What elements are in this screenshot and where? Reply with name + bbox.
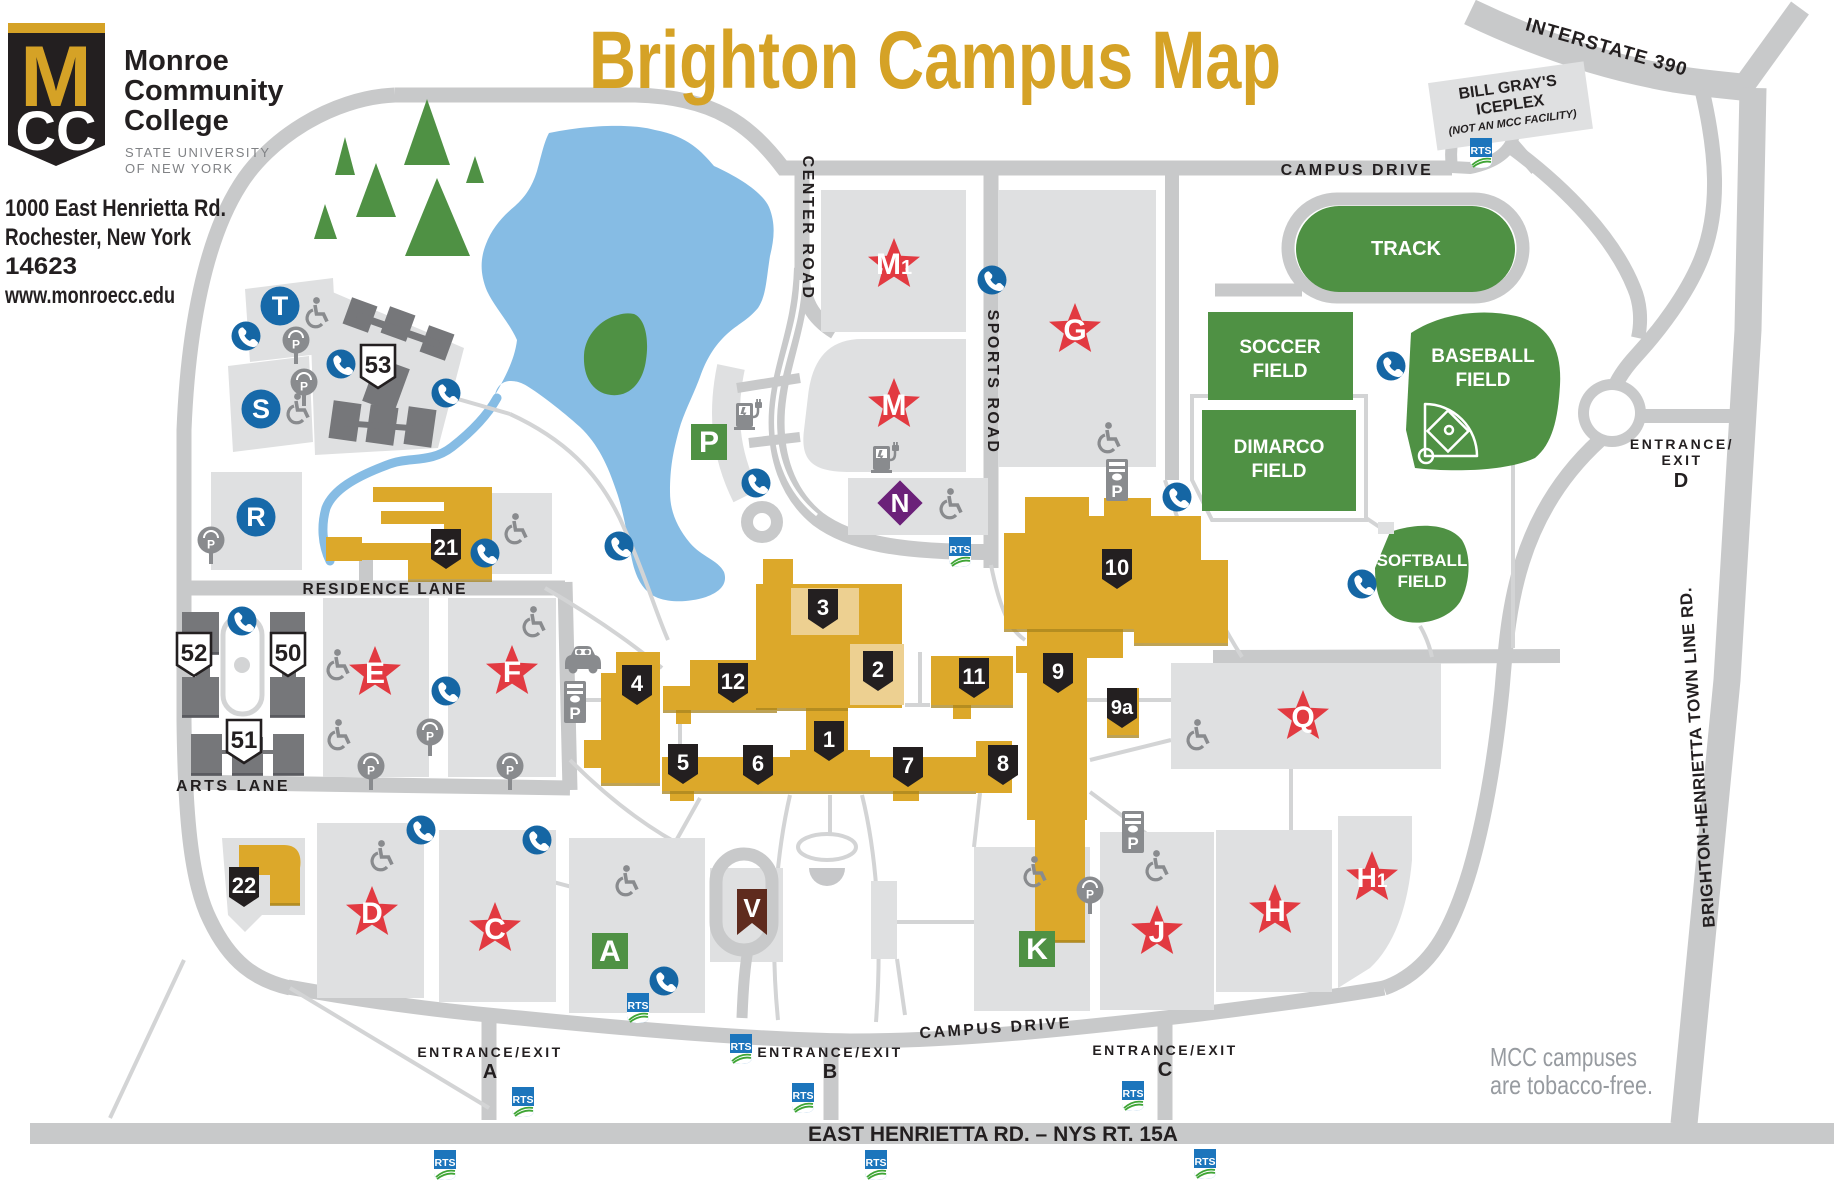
svg-text:Rochester, New York: Rochester, New York [5, 224, 192, 251]
svg-text:12: 12 [721, 669, 745, 694]
svg-text:DIMARCO: DIMARCO [1234, 437, 1325, 458]
svg-text:MCC campuses: MCC campuses [1490, 1042, 1637, 1072]
svg-text:E: E [365, 657, 385, 690]
svg-text:1000 East Henrietta Rd.: 1000 East Henrietta Rd. [5, 195, 226, 222]
svg-text:3: 3 [817, 595, 829, 620]
svg-text:V: V [743, 893, 761, 923]
svg-text:10: 10 [1105, 555, 1129, 580]
svg-text:9a: 9a [1111, 697, 1134, 719]
svg-text:RESIDENCE LANE: RESIDENCE LANE [303, 581, 468, 598]
svg-text:are tobacco-free.: are tobacco-free. [1490, 1070, 1653, 1100]
svg-text:S: S [252, 394, 270, 424]
svg-text:8: 8 [997, 751, 1009, 776]
svg-text:CC: CC [16, 99, 97, 162]
svg-text:M: M [882, 389, 907, 422]
svg-text:SOCCER: SOCCER [1239, 337, 1321, 358]
svg-text:J: J [1149, 916, 1166, 949]
svg-text:ENTRANCE/: ENTRANCE/ [1630, 436, 1734, 452]
svg-text:G: G [1063, 314, 1086, 347]
svg-text:5: 5 [677, 750, 689, 775]
svg-text:CENTER ROAD: CENTER ROAD [799, 156, 816, 301]
svg-text:50: 50 [275, 640, 302, 667]
svg-text:D: D [361, 897, 383, 930]
svg-text:College: College [124, 105, 229, 137]
svg-text:Q: Q [1291, 701, 1314, 734]
svg-text:SOFTBALL: SOFTBALL [1377, 551, 1468, 570]
svg-text:52: 52 [181, 640, 208, 667]
svg-text:C: C [1158, 1059, 1172, 1081]
svg-text:T: T [272, 291, 289, 321]
svg-text:22: 22 [232, 873, 256, 898]
svg-text:Brighton Campus Map: Brighton Campus Map [589, 15, 1281, 106]
svg-text:CAMPUS DRIVE: CAMPUS DRIVE [1281, 162, 1434, 179]
svg-text:4: 4 [631, 671, 644, 696]
svg-text:FIELD: FIELD [1253, 361, 1308, 382]
svg-text:BASEBALL: BASEBALL [1431, 346, 1535, 367]
svg-text:7: 7 [902, 753, 914, 778]
svg-text:1: 1 [823, 727, 835, 752]
svg-text:A: A [599, 935, 621, 968]
svg-text:ENTRANCE/EXIT: ENTRANCE/EXIT [1092, 1042, 1237, 1058]
svg-text:www.monroecc.edu: www.monroecc.edu [4, 282, 175, 308]
svg-text:21: 21 [434, 535, 458, 560]
svg-text:51: 51 [231, 727, 258, 754]
svg-text:OF NEW YORK: OF NEW YORK [125, 161, 234, 176]
svg-text:2: 2 [872, 657, 884, 682]
svg-text:EAST HENRIETTA RD. – NYS RT. 1: EAST HENRIETTA RD. – NYS RT. 15A [808, 1123, 1178, 1146]
svg-text:ENTRANCE/EXIT: ENTRANCE/EXIT [417, 1044, 562, 1060]
svg-text:ARTS LANE: ARTS LANE [176, 778, 290, 795]
svg-text:P: P [699, 426, 719, 459]
svg-text:Community: Community [124, 75, 284, 107]
svg-text:B: B [823, 1061, 837, 1083]
svg-text:FIELD: FIELD [1397, 572, 1446, 591]
svg-text:N: N [891, 488, 910, 518]
svg-text:A: A [483, 1061, 497, 1083]
svg-text:14623: 14623 [5, 253, 77, 280]
svg-text:6: 6 [752, 751, 764, 776]
svg-text:Monroe: Monroe [124, 45, 229, 77]
svg-text:SPORTS ROAD: SPORTS ROAD [984, 310, 1001, 455]
svg-text:STATE UNIVERSITY: STATE UNIVERSITY [125, 145, 271, 160]
svg-text:H: H [1264, 895, 1286, 928]
svg-text:R: R [246, 502, 266, 532]
svg-text:TRACK: TRACK [1371, 238, 1442, 260]
svg-text:F: F [503, 656, 521, 689]
svg-text:C: C [484, 913, 506, 946]
svg-text:FIELD: FIELD [1252, 461, 1307, 482]
svg-text:9: 9 [1052, 659, 1064, 684]
svg-text:FIELD: FIELD [1456, 370, 1511, 391]
svg-text:D: D [1674, 470, 1688, 492]
svg-text:EXIT: EXIT [1661, 452, 1702, 468]
svg-text:53: 53 [365, 352, 392, 379]
svg-text:K: K [1026, 933, 1048, 966]
svg-text:11: 11 [962, 664, 985, 689]
svg-text:ENTRANCE/EXIT: ENTRANCE/EXIT [757, 1044, 902, 1060]
